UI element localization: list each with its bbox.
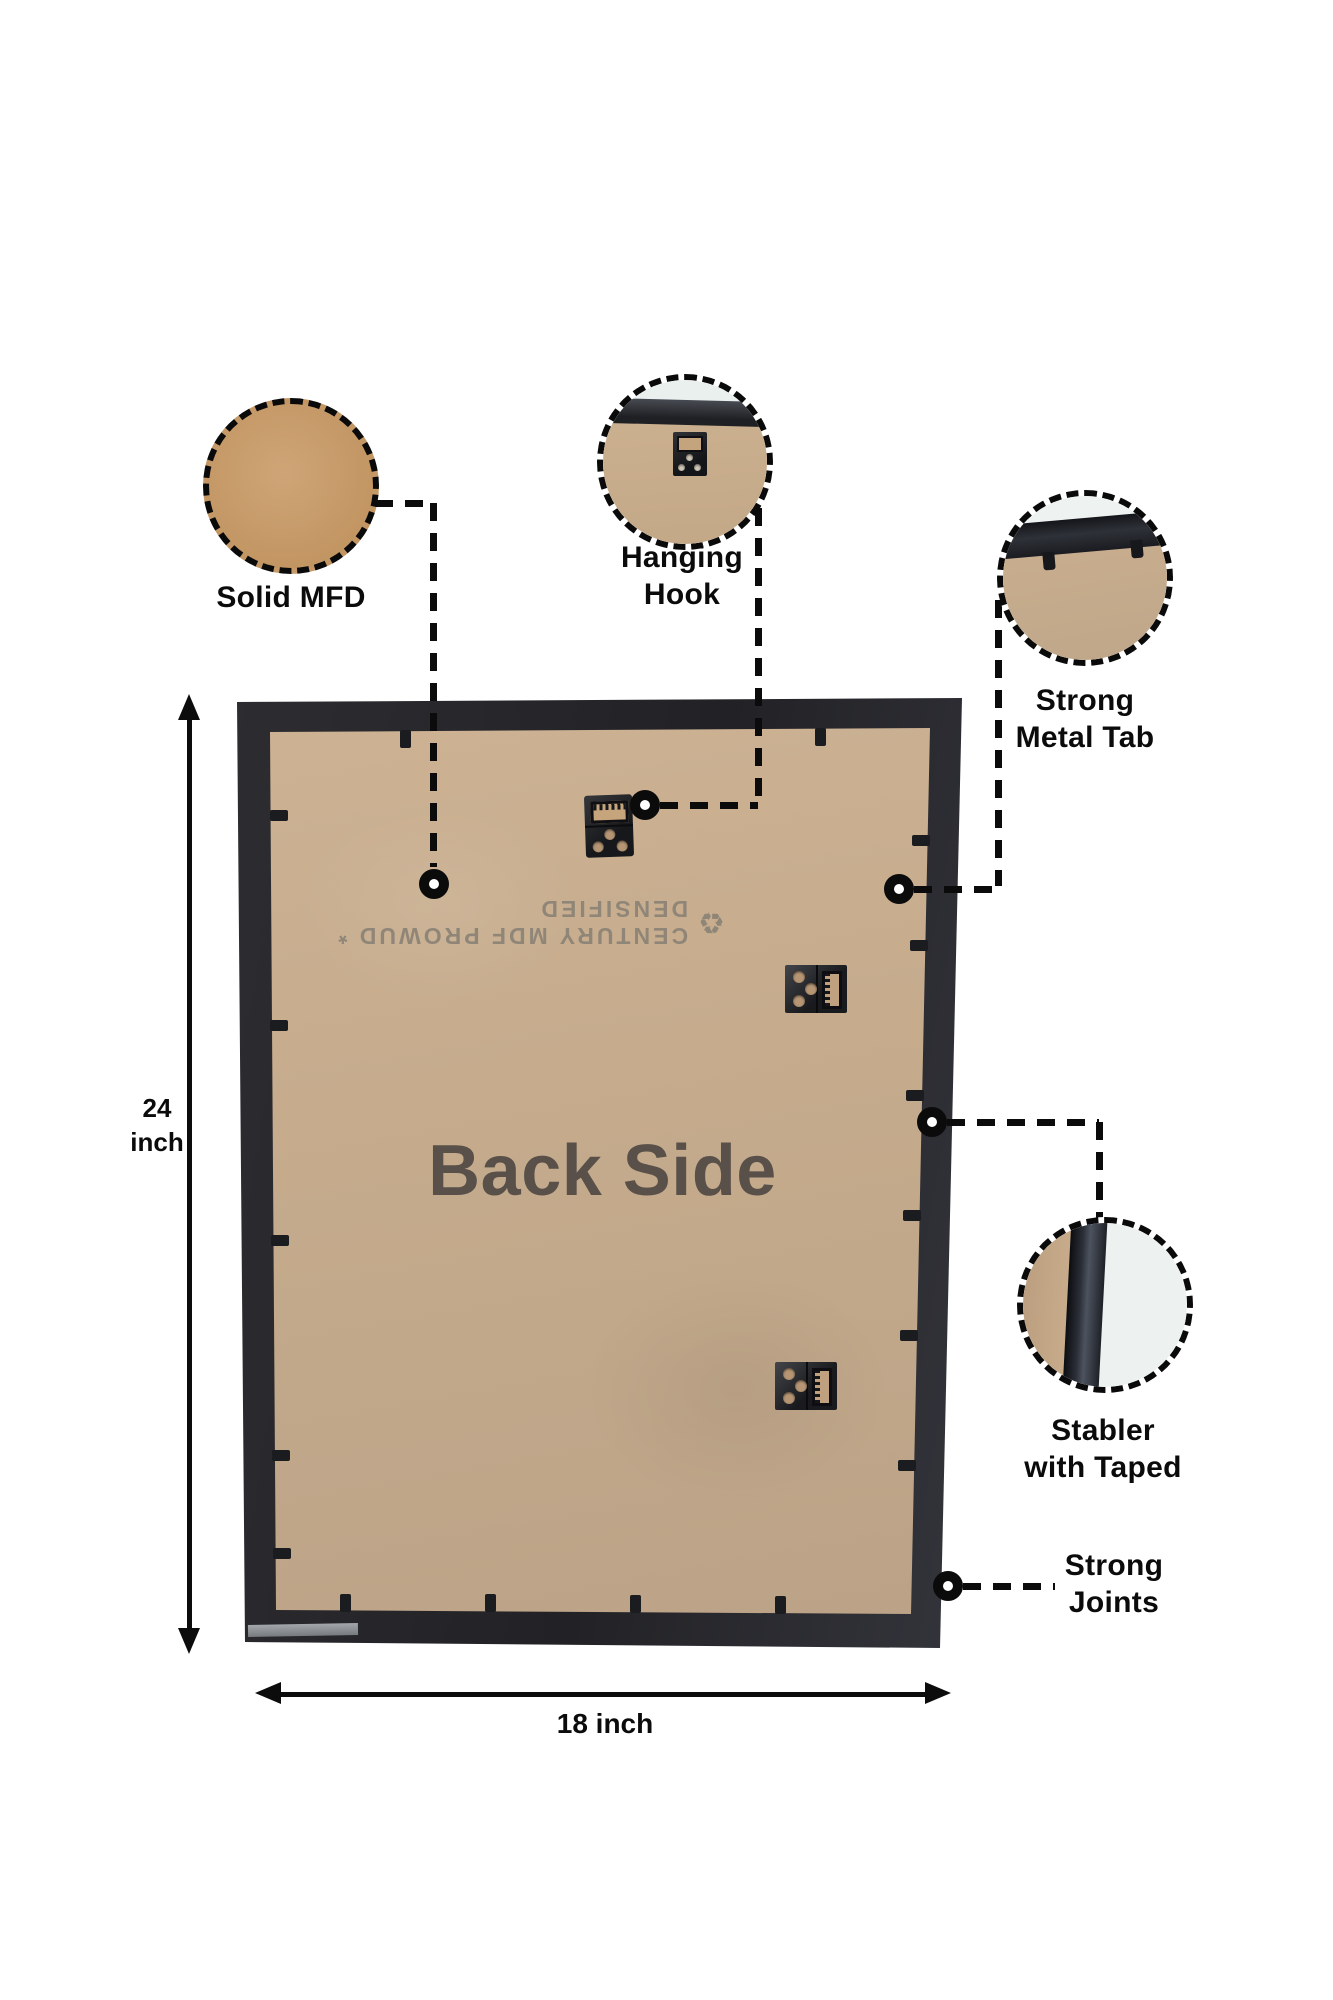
hinge-teeth bbox=[825, 974, 830, 1006]
hinge-slot bbox=[812, 1368, 832, 1406]
screw-hole bbox=[805, 983, 817, 995]
arrow-right-icon bbox=[925, 1682, 951, 1704]
board-stamp-text: CENTURY MDF PROWUD * DENSIFIED bbox=[255, 895, 688, 949]
metal-tab bbox=[340, 1594, 351, 1612]
dashed-connector bbox=[430, 503, 437, 867]
metal-tab bbox=[900, 1330, 918, 1341]
hook-slot bbox=[677, 436, 703, 452]
callout-circle-stabler bbox=[1017, 1217, 1193, 1393]
height-dimension-line bbox=[187, 702, 192, 1646]
product-infographic: ♻ CENTURY MDF PROWUD * DENSIFIED Back Si… bbox=[0, 0, 1333, 2000]
board-title: Back Side bbox=[230, 1130, 975, 1212]
screw-hole bbox=[793, 995, 805, 1007]
screw-hole bbox=[617, 840, 628, 851]
callout-circle-hanging-hook bbox=[597, 374, 773, 550]
anchor-point-solid-mfd bbox=[419, 869, 449, 899]
callout-label-hanging-hook: Hanging Hook bbox=[562, 540, 802, 613]
frame-photo: ♻ CENTURY MDF PROWUD * DENSIFIED Back Si… bbox=[230, 690, 975, 1660]
metal-tab-closeup bbox=[1042, 552, 1056, 571]
hanging-hook-hardware bbox=[584, 794, 634, 858]
metal-tab bbox=[815, 728, 826, 746]
hook-slot bbox=[590, 800, 629, 823]
anchor-point-strong-joints bbox=[933, 1571, 963, 1601]
callout-circle-solid-mfd bbox=[203, 398, 379, 574]
dashed-connector bbox=[914, 886, 1000, 893]
metal-tab bbox=[898, 1460, 916, 1471]
metal-tab bbox=[485, 1594, 496, 1612]
metal-tab bbox=[903, 1210, 921, 1221]
screw-hole bbox=[783, 1392, 795, 1404]
anchor-point-strong-metal-tab bbox=[884, 874, 914, 904]
screw-hole bbox=[686, 454, 693, 461]
metal-tab bbox=[272, 1450, 290, 1461]
callout-label-solid-mfd: Solid MFD bbox=[171, 580, 411, 617]
callout-circle-strong-metal-tab bbox=[997, 490, 1173, 666]
hinge-slot bbox=[822, 971, 842, 1009]
screw-hole bbox=[793, 971, 805, 983]
arrow-down-icon bbox=[178, 1628, 200, 1654]
screw-hole bbox=[694, 464, 701, 471]
hook-seam bbox=[585, 824, 633, 828]
board-stamp: ♻ CENTURY MDF PROWUD * DENSIFIED bbox=[255, 902, 725, 942]
metal-tab bbox=[400, 730, 411, 748]
metal-tab bbox=[271, 1235, 289, 1246]
dashed-connector bbox=[947, 1119, 1099, 1126]
width-dimension-line bbox=[276, 1692, 930, 1697]
metal-tab-closeup bbox=[1130, 540, 1144, 559]
metal-tab bbox=[906, 1090, 924, 1101]
callout-label-strong-joints: Strong Joints bbox=[994, 1548, 1234, 1621]
metal-tab bbox=[912, 835, 930, 846]
arrow-left-icon bbox=[255, 1682, 281, 1704]
dashed-connector bbox=[660, 802, 758, 809]
screw-hole bbox=[795, 1380, 807, 1392]
dashed-connector bbox=[1096, 1122, 1103, 1222]
width-dimension-label: 18 inch bbox=[485, 1706, 725, 1742]
anchor-point-stabler bbox=[917, 1107, 947, 1137]
metal-tab bbox=[270, 1020, 288, 1031]
hanging-hook-closeup bbox=[673, 432, 707, 476]
frame-bevel-highlight bbox=[248, 1623, 358, 1637]
metal-tab bbox=[270, 810, 288, 821]
hook-teeth bbox=[593, 803, 625, 810]
metal-tab bbox=[273, 1548, 291, 1559]
anchor-point-hanging-hook bbox=[630, 790, 660, 820]
hinge-hardware-bottom bbox=[775, 1362, 837, 1410]
recycle-logo-icon: ♻ bbox=[698, 905, 725, 940]
screw-hole bbox=[604, 829, 615, 840]
metal-tab bbox=[775, 1596, 786, 1614]
callout-label-stabler: Stabler with Taped bbox=[983, 1413, 1223, 1486]
metal-tab bbox=[910, 940, 928, 951]
callout-label-strong-metal-tab: Strong Metal Tab bbox=[965, 683, 1205, 756]
screw-hole bbox=[678, 464, 685, 471]
screw-hole bbox=[593, 841, 604, 852]
hinge-teeth bbox=[815, 1371, 820, 1403]
height-dimension-label: 24 inch bbox=[107, 1092, 207, 1160]
metal-tab bbox=[630, 1595, 641, 1613]
arrow-up-icon bbox=[178, 694, 200, 720]
hinge-hardware-top bbox=[785, 965, 847, 1013]
screw-hole bbox=[783, 1368, 795, 1380]
dashed-connector bbox=[375, 500, 435, 507]
